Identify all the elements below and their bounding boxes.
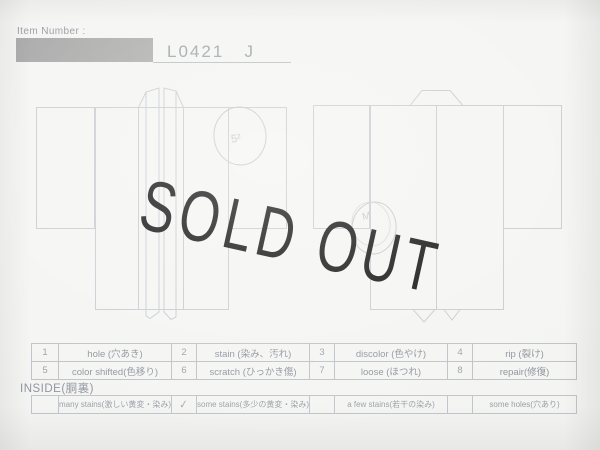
defect-code: 6 (172, 362, 197, 380)
checkbox-cell: ✓ (172, 396, 197, 414)
inside-row: many stains(激しい黄変・染み) ✓ some stains(多少の黄… (32, 396, 577, 414)
defect-label: repair(修復) (473, 362, 577, 380)
defect-label: color shifted(色移り) (59, 362, 172, 380)
defect-label: rip (裂け) (473, 344, 577, 362)
defect-label: stain (染み、汚れ) (197, 344, 310, 362)
defect-label: loose (ほつれ) (335, 362, 448, 380)
inside-option-label: a few stains(若干の染み) (335, 396, 448, 414)
inside-option-label: some holes(穴あり) (473, 396, 577, 414)
defect-code: 1 (32, 344, 59, 362)
checkbox-cell (448, 396, 473, 414)
defect-code: 8 (448, 362, 473, 380)
defect-row: 5 color shifted(色移り) 6 scratch (ひっかき傷) 7… (32, 362, 577, 380)
defect-code: 3 (310, 344, 335, 362)
defect-code: 2 (172, 344, 197, 362)
inside-section-title: INSIDE(胴裏) (20, 380, 94, 396)
inside-condition-table: many stains(激しい黄変・染み) ✓ some stains(多少の黄… (31, 395, 577, 414)
defect-row: 1 hole (穴あき) 2 stain (染み、汚れ) 3 discolor … (32, 344, 577, 362)
defect-label: scratch (ひっかき傷) (197, 362, 310, 380)
checkbox-cell (310, 396, 335, 414)
checkbox-cell (32, 396, 59, 414)
inside-option-label: some stains(多少の黄変・染み) (197, 396, 310, 414)
check-mark: ✓ (179, 397, 190, 411)
defect-code: 4 (448, 344, 473, 362)
defect-code: 7 (310, 362, 335, 380)
annotation-mark-front: 5² (230, 132, 242, 145)
inside-option-label: many stains(激しい黄変・染み) (59, 396, 172, 414)
defect-code-table: 1 hole (穴あき) 2 stain (染み、汚れ) 3 discolor … (31, 343, 577, 380)
defect-label: hole (穴あき) (59, 344, 172, 362)
defect-label: discolor (色やけ) (335, 344, 448, 362)
defect-code: 5 (32, 362, 59, 380)
scanned-sheet: Item Number : L0421 J (0, 0, 600, 450)
